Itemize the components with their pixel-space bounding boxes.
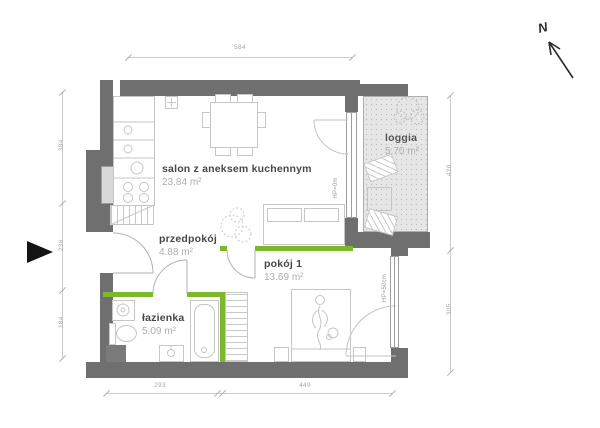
dimension-label-bottom: 449 xyxy=(290,383,320,390)
floor-plan: salon z aneksem kuchennym 23.84 m² przed… xyxy=(0,0,600,428)
door-swing-entrance xyxy=(113,233,153,273)
room-label-przedpokoj: przedpokój 4.88 m² xyxy=(159,234,217,258)
window-bedroom xyxy=(390,256,399,348)
room-area-value: 5.70 xyxy=(385,146,404,157)
sill-height-label-bedroom-window: HP=50cm xyxy=(382,264,388,312)
loggia-table xyxy=(367,187,392,211)
wall-segment-salon-right-lower xyxy=(345,218,358,232)
entrance-marker xyxy=(27,241,53,263)
dining-table xyxy=(210,102,258,148)
room-area-value: 4.88 xyxy=(159,247,178,258)
chair xyxy=(257,112,266,128)
room-area-value: 23.84 xyxy=(162,177,187,188)
window-loggia-door xyxy=(346,112,357,218)
chair xyxy=(237,94,253,103)
dimension-label-top: 584 xyxy=(225,45,255,52)
window-swing-loggia-door xyxy=(314,120,348,154)
room-name: pokój 1 xyxy=(264,259,303,270)
hall-wardrobe xyxy=(110,205,154,225)
dimension-label-right: 305 xyxy=(447,294,454,324)
room-area-value: 5.09 xyxy=(142,326,161,337)
green-wall-stub xyxy=(220,246,227,251)
dimension-label-right: 420 xyxy=(447,155,454,185)
dimension-tick xyxy=(59,355,66,362)
door-swing-bedroom xyxy=(227,250,255,278)
dimension-line-right xyxy=(450,95,451,372)
room-label-lazienka: łazienka 5.09 m² xyxy=(142,313,184,337)
dimension-label-left: 304 xyxy=(59,130,66,160)
chair xyxy=(215,94,231,103)
wall-segment-bedroom-right-lower xyxy=(391,348,408,362)
room-label-salon: salon z aneksem kuchennym 23.84 m² xyxy=(162,164,312,188)
toilet-tank xyxy=(109,323,116,345)
room-area-value: 13.69 xyxy=(264,272,289,283)
sofa-cushion xyxy=(267,208,302,222)
nightstand xyxy=(353,347,366,362)
bedroom-wardrobe xyxy=(225,292,248,362)
room-label-loggia: loggia 5.70 m² xyxy=(385,133,419,157)
plant-sketch xyxy=(221,208,251,242)
nightstand xyxy=(274,347,289,362)
room-label-pokoj1: pokój 1 13.69 m² xyxy=(264,259,303,283)
room-name: loggia xyxy=(385,133,419,144)
bed xyxy=(291,289,351,362)
ceiling-lamp-symbol xyxy=(165,96,178,109)
dimension-tick xyxy=(447,369,454,376)
dimension-label-left: 184 xyxy=(59,307,66,337)
chair xyxy=(237,147,253,156)
room-area-unit: m² xyxy=(292,272,304,283)
bathtub-inner xyxy=(194,304,215,358)
dimension-tick xyxy=(389,390,396,397)
room-area-unit: m² xyxy=(181,247,193,258)
room-name: salon z aneksem kuchennym xyxy=(162,164,312,175)
dimension-line-bottom xyxy=(106,393,392,394)
wall-segment-left-upper xyxy=(100,80,113,152)
door-swing-bathroom xyxy=(153,260,187,294)
bathroom-shaft xyxy=(106,345,126,362)
toilet-bowl xyxy=(116,325,137,342)
room-area-unit: m² xyxy=(190,177,202,188)
room-area-unit: m² xyxy=(164,326,176,337)
dimension-tick xyxy=(349,54,356,61)
sill-height-label-loggia-door: HP=0m xyxy=(333,164,339,212)
dimension-line-top xyxy=(128,57,352,58)
room-area-unit: m² xyxy=(407,146,419,157)
green-wall-bathroom-top-right xyxy=(187,292,220,297)
wall-segment-loggia-top xyxy=(352,84,408,96)
washbasin-cabinet xyxy=(159,345,184,362)
chair xyxy=(215,147,231,156)
north-label: N xyxy=(536,19,549,36)
north-arrow xyxy=(549,42,573,78)
dimension-label-left: 236 xyxy=(59,230,66,260)
kitchen-counter xyxy=(113,96,155,206)
chair xyxy=(202,112,211,128)
wall-segment-salon-right-upper xyxy=(345,96,358,112)
wall-segment-bottom xyxy=(86,362,408,378)
room-name: łazienka xyxy=(142,313,184,324)
dimension-label-bottom: 293 xyxy=(145,383,175,390)
wall-segment-bedroom-right-upper xyxy=(391,248,408,256)
green-wall-bedroom-top xyxy=(255,246,353,251)
green-wall-bathroom-top-left xyxy=(103,292,153,297)
washing-machine xyxy=(112,300,135,321)
room-name: przedpokój xyxy=(159,234,217,245)
